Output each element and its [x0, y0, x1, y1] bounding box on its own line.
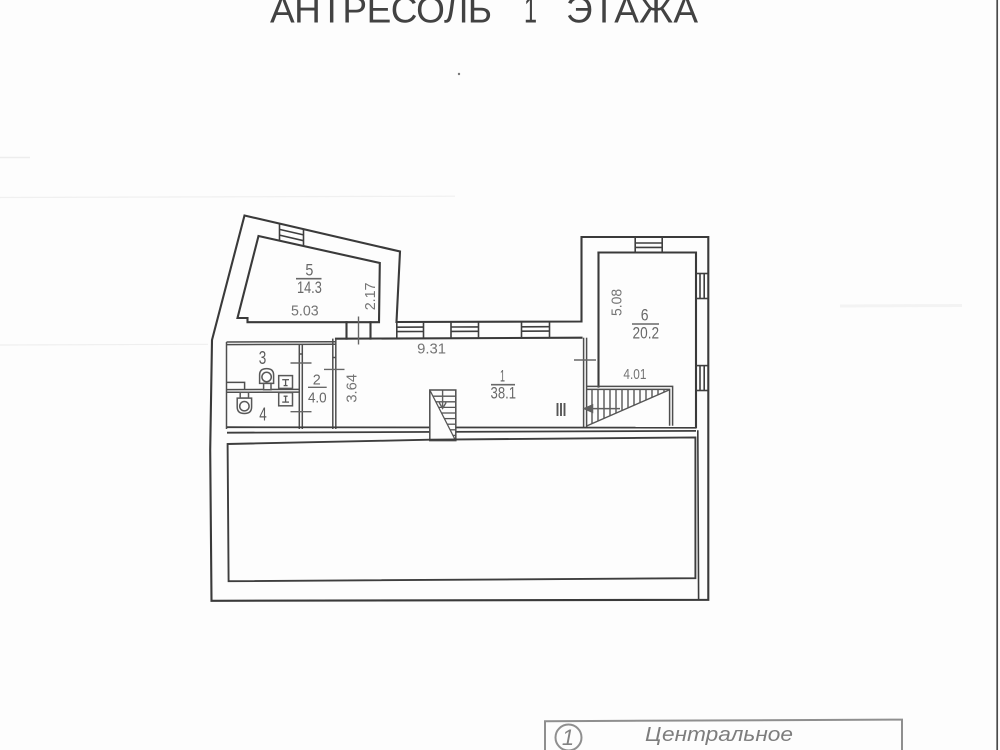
svg-text:2.17: 2.17	[362, 283, 379, 311]
svg-text:2: 2	[313, 372, 321, 389]
svg-text:5.03: 5.03	[291, 303, 319, 320]
svg-text:4.0: 4.0	[308, 390, 327, 407]
svg-text:Центральное: Центральное	[645, 724, 793, 746]
svg-text:АНТРЕСОЛЬ: АНТРЕСОЛЬ	[270, 0, 492, 31]
svg-text:6: 6	[641, 306, 649, 325]
svg-text:3: 3	[259, 348, 267, 368]
svg-text:4: 4	[259, 405, 267, 425]
svg-text:4.01: 4.01	[623, 366, 646, 383]
svg-text:ЭТАЖА: ЭТАЖА	[566, 0, 698, 31]
svg-text:9.31: 9.31	[417, 341, 446, 358]
svg-text:1: 1	[562, 725, 574, 750]
svg-text:38.1: 38.1	[491, 384, 517, 403]
svg-text:1: 1	[524, 0, 537, 31]
svg-text:3.64: 3.64	[344, 374, 361, 403]
svg-text:14.3: 14.3	[297, 278, 322, 297]
svg-text:20.2: 20.2	[633, 324, 660, 343]
svg-text:5.08: 5.08	[608, 289, 625, 316]
svg-text:5: 5	[305, 261, 313, 280]
